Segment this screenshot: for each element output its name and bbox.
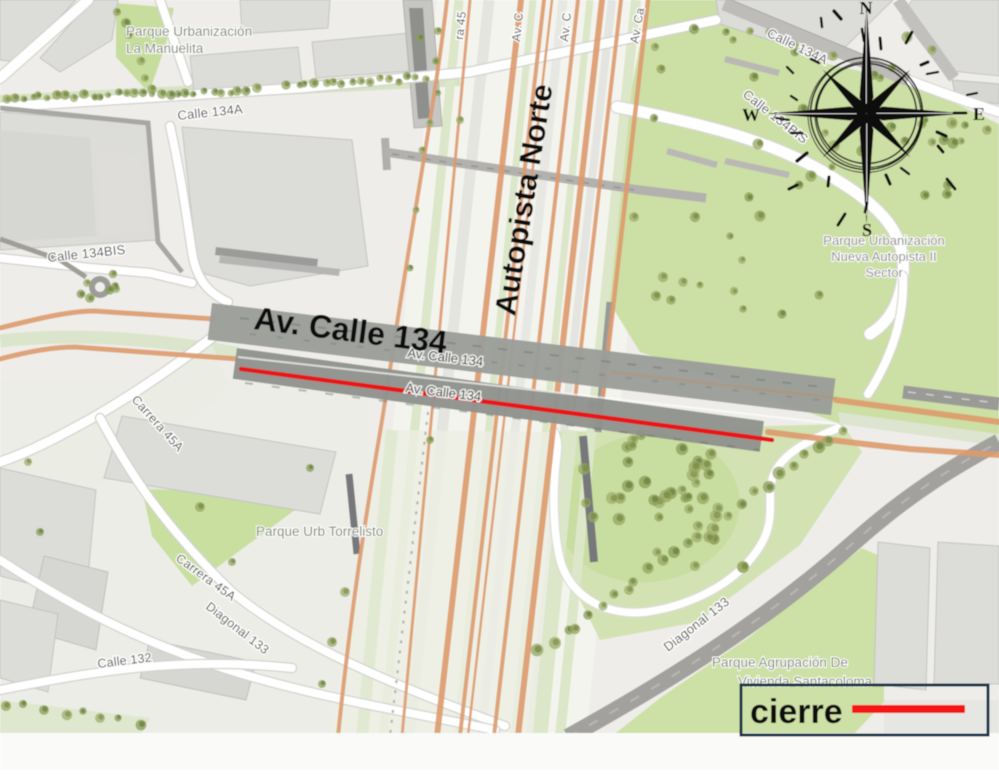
svg-text:cierre: cierre <box>750 693 843 731</box>
svg-text:Parque Urbanización: Parque Urbanización <box>126 24 252 39</box>
svg-text:Parque Agrupación De: Parque Agrupación De <box>712 655 848 670</box>
svg-text:Parque Urbanización: Parque Urbanización <box>823 233 944 248</box>
svg-text:Parque Urb Torrelisto: Parque Urb Torrelisto <box>256 524 383 539</box>
svg-text:Nueva Autopista II: Nueva Autopista II <box>831 249 937 264</box>
svg-text:E: E <box>973 104 985 124</box>
svg-text:W: W <box>742 105 760 125</box>
svg-text:ra 45: ra 45 <box>452 11 469 41</box>
svg-text:S: S <box>862 220 872 240</box>
svg-text:N: N <box>860 0 873 18</box>
svg-text:Sector: Sector <box>865 265 903 280</box>
svg-text:Vivienda Santacoloma: Vivienda Santacoloma <box>738 674 873 689</box>
svg-text:La Manuelita: La Manuelita <box>126 41 204 56</box>
